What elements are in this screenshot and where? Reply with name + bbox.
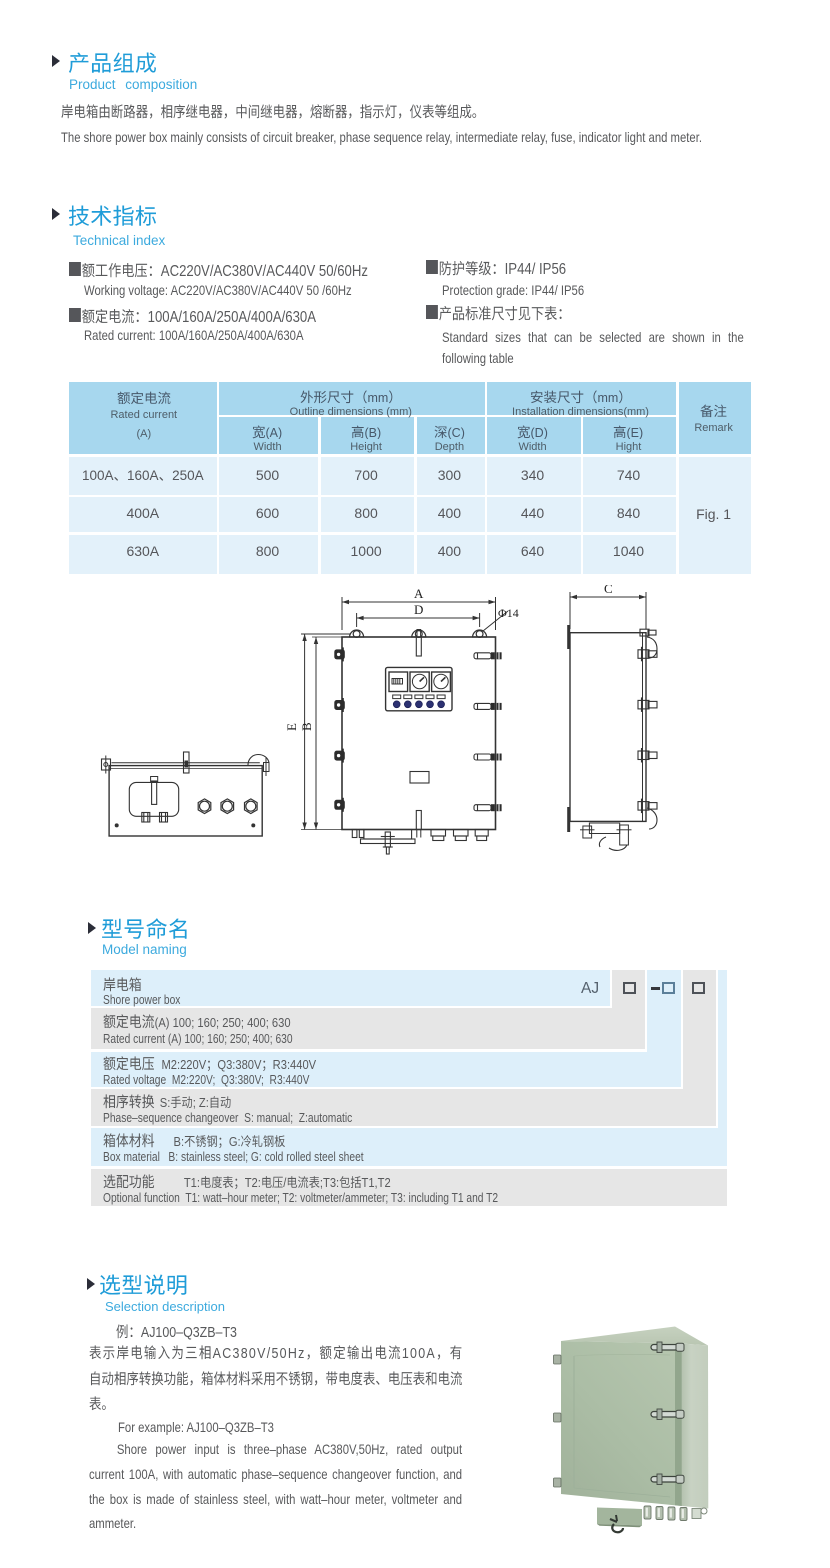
svg-text:(A) 100; 160; 250; 400; 630: (A) 100; 160; 250; 400; 630: [155, 1015, 291, 1030]
svg-text:T1,T2: T1,T2: [362, 1175, 391, 1190]
svg-text:mm: mm: [597, 391, 618, 404]
svg-text:250A: 250A: [172, 468, 204, 482]
svg-text:B:: B:: [174, 1134, 185, 1149]
svg-text:(D): (D): [531, 426, 548, 439]
svg-text:IP44/ IP56: IP44/ IP56: [505, 261, 566, 276]
svg-text:/: /: [283, 1175, 287, 1190]
svg-text:G:: G:: [229, 1134, 241, 1149]
svg-text:T1:: T1:: [184, 1175, 200, 1190]
svg-text:A: A: [414, 586, 424, 601]
svg-text:S:: S:: [160, 1095, 171, 1110]
svg-text:T2:: T2:: [245, 1175, 261, 1190]
svg-text:; Z:: ; Z:: [193, 1095, 209, 1110]
svg-text:;T3:: ;T3:: [320, 1175, 339, 1190]
svg-text:E: E: [284, 723, 299, 731]
svg-text:(E): (E): [627, 426, 644, 439]
svg-text:M2:220V: M2:220V: [161, 1057, 207, 1072]
svg-text:Φ14: Φ14: [498, 606, 519, 620]
svg-text:(C): (C): [448, 426, 465, 439]
svg-text:AC220V/AC380V/AC440V 50/60Hz: AC220V/AC380V/AC440V 50/60Hz: [161, 263, 368, 278]
svg-text:B: B: [299, 722, 314, 731]
svg-text:100A: 100A: [402, 1345, 436, 1361]
svg-text:AC380V/50Hz: AC380V/50Hz: [213, 1345, 306, 1361]
svg-text:100A/160A/250A/400A/630A: 100A/160A/250A/400A/630A: [148, 309, 317, 324]
svg-text:R3:440V: R3:440V: [273, 1057, 317, 1072]
svg-text:C: C: [604, 585, 613, 596]
svg-text:(A): (A): [266, 426, 283, 439]
svg-text:Q3:380V: Q3:380V: [217, 1057, 262, 1072]
svg-text:AJ100–Q3ZB–T3: AJ100–Q3ZB–T3: [141, 1324, 237, 1340]
svg-text:160A: 160A: [127, 468, 159, 482]
svg-text:D: D: [414, 602, 423, 617]
svg-text:100A: 100A: [82, 468, 114, 482]
svg-text:(B): (B): [365, 426, 382, 439]
svg-text:mm: mm: [367, 391, 388, 404]
